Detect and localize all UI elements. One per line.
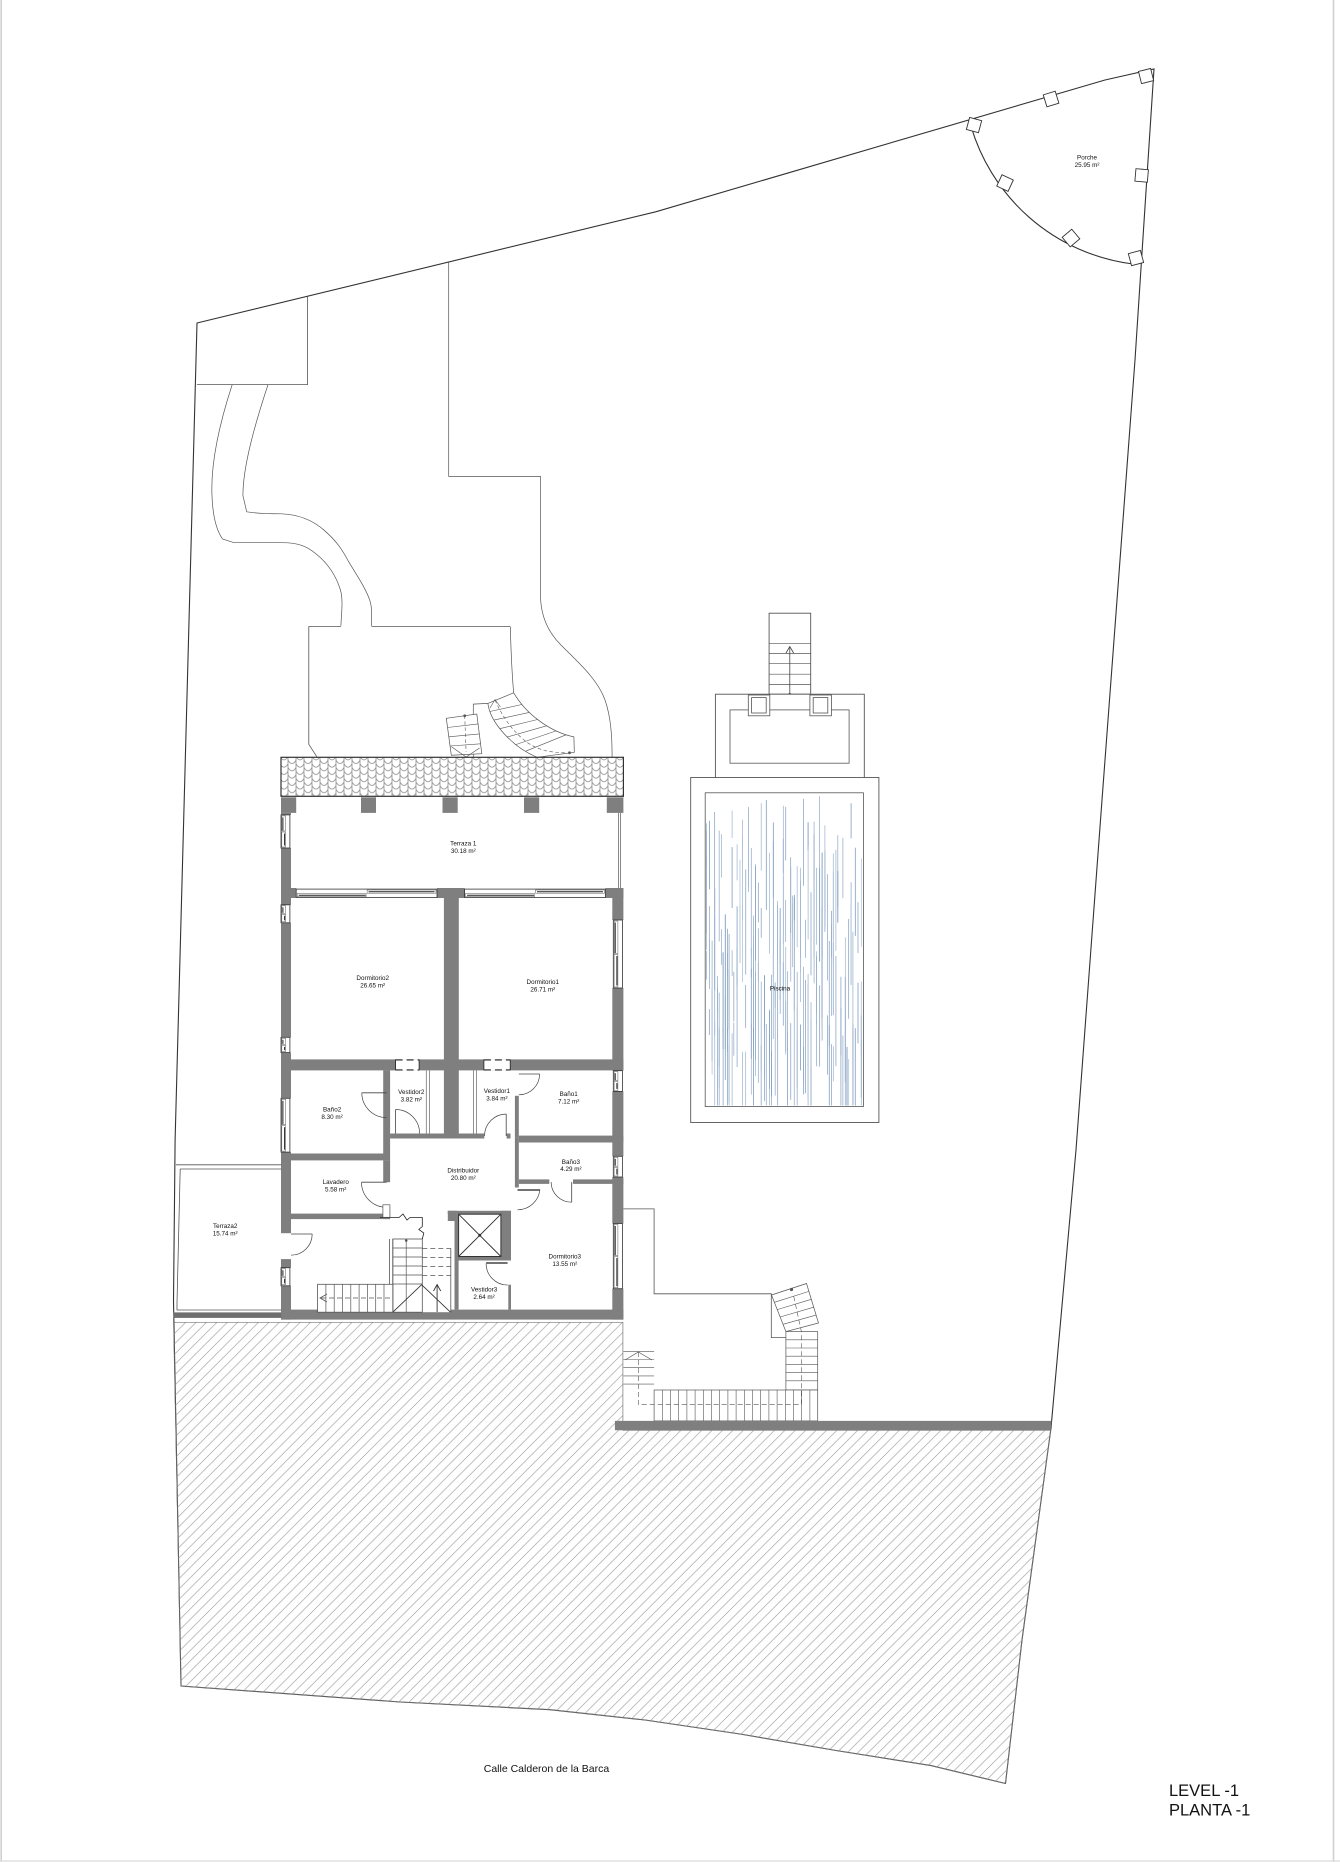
svg-text:Vestidor2: Vestidor2 (398, 1089, 425, 1096)
svg-text:Piscina: Piscina (770, 986, 791, 993)
svg-text:Terraza2: Terraza2 (213, 1223, 238, 1230)
svg-text:Vestidor1: Vestidor1 (484, 1088, 511, 1095)
svg-text:PLANTA -1: PLANTA -1 (1169, 1802, 1250, 1820)
svg-text:Calle Calderon de la Barca: Calle Calderon de la Barca (484, 1763, 610, 1775)
svg-text:26.71 m²: 26.71 m² (530, 987, 555, 994)
svg-text:Baño1: Baño1 (560, 1091, 579, 1098)
svg-text:Terraza 1: Terraza 1 (450, 841, 477, 848)
svg-text:8.30 m²: 8.30 m² (321, 1114, 342, 1121)
svg-text:Dormitorio3: Dormitorio3 (549, 1254, 582, 1261)
svg-text:Distribuidor: Distribuidor (447, 1168, 479, 1175)
svg-text:25.95 m²: 25.95 m² (1075, 162, 1100, 169)
svg-text:3.84 m²: 3.84 m² (486, 1095, 507, 1102)
svg-text:20.80 m²: 20.80 m² (451, 1175, 476, 1182)
svg-text:Dormitorio1: Dormitorio1 (527, 979, 560, 986)
svg-text:Baño2: Baño2 (323, 1106, 342, 1113)
svg-text:Vestidor3: Vestidor3 (471, 1286, 498, 1293)
svg-text:7.12 m²: 7.12 m² (558, 1099, 579, 1106)
svg-text:13.55 m²: 13.55 m² (552, 1261, 577, 1268)
svg-text:Dormitorio2: Dormitorio2 (356, 975, 389, 982)
svg-text:30.18 m²: 30.18 m² (451, 848, 476, 855)
svg-text:4.29 m²: 4.29 m² (560, 1166, 581, 1173)
svg-text:LEVEL -1: LEVEL -1 (1169, 1782, 1239, 1800)
svg-text:3.82 m²: 3.82 m² (401, 1096, 422, 1103)
svg-text:5.58 m²: 5.58 m² (325, 1186, 346, 1193)
svg-text:Lavadero: Lavadero (323, 1179, 350, 1186)
svg-text:Porche: Porche (1077, 155, 1097, 162)
svg-text:Baño3: Baño3 (562, 1159, 581, 1166)
svg-text:26.65 m²: 26.65 m² (360, 982, 385, 989)
svg-text:15.74 m²: 15.74 m² (213, 1230, 238, 1237)
svg-text:2.64 m²: 2.64 m² (473, 1294, 494, 1301)
